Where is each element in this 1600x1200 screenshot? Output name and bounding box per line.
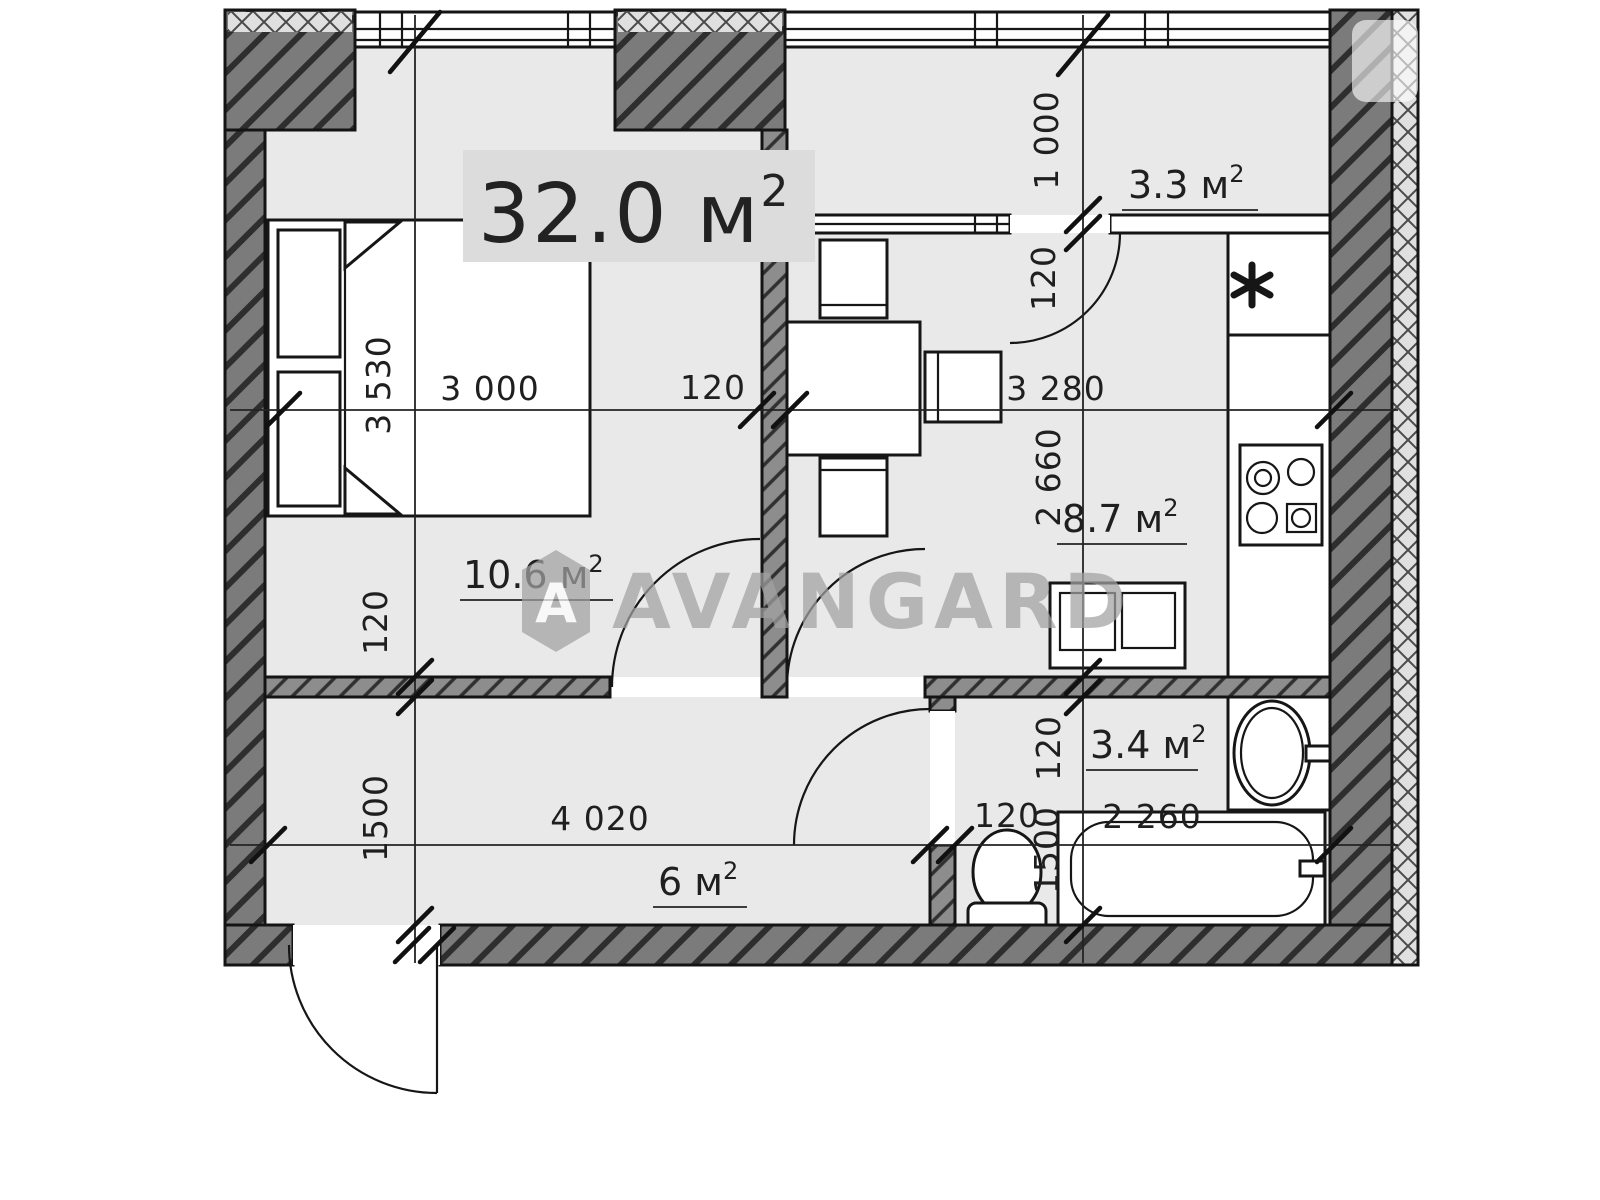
- wall-bedroom-hallway: [265, 677, 610, 697]
- kitchen-area-label: 8.7 м2: [1062, 494, 1178, 541]
- corner-overlay-icon[interactable]: [1352, 20, 1418, 102]
- wall-kitchen-bathroom: [925, 677, 1330, 697]
- cooktop: [1240, 445, 1322, 545]
- bedroom-window: [355, 12, 615, 47]
- dim-hall-width: 4 020: [550, 799, 649, 838]
- dim-loggia-partition: 120: [1024, 245, 1063, 311]
- chair: [820, 240, 887, 318]
- dining-table: [787, 322, 920, 455]
- right-wall-insulation: [1392, 10, 1418, 965]
- total-area-label: 32.0 м2: [478, 166, 791, 262]
- dim-kitchen-width: 3 280: [1006, 369, 1105, 408]
- bathroom-area-label: 3.4 м2: [1090, 720, 1206, 767]
- dim-bath-height: 1500: [1027, 806, 1066, 894]
- bedroom-door-threshold: [610, 677, 762, 697]
- top-left-insulation: [228, 12, 352, 32]
- watermark-brand: AVANGARD: [612, 557, 1133, 646]
- kitchen-door-threshold: [787, 677, 925, 697]
- loggia-window: [785, 12, 1330, 47]
- dim-loggia-depth: 1 000: [1027, 90, 1066, 189]
- entrance-door-arc: [289, 945, 437, 1093]
- tub-faucet: [1300, 861, 1324, 876]
- floor-plan-page: 3 000 120 3 280 4 020 120 2 260 3 530 12…: [0, 0, 1600, 1200]
- entrance-threshold: [293, 925, 440, 965]
- dim-bedroom-width: 3 000: [440, 369, 539, 408]
- pillow: [278, 372, 340, 506]
- pier-insulation: [618, 12, 782, 32]
- windows: [355, 12, 1330, 47]
- bed: [268, 220, 590, 516]
- basin-faucet: [1306, 746, 1330, 761]
- wall-hallway-bathroom-top: [930, 697, 955, 711]
- watermark-logo-letter: A: [535, 572, 577, 635]
- dim-wall-bedroom-kitchen: 120: [680, 368, 746, 407]
- loggia-area-label: 3.3 м2: [1128, 160, 1244, 207]
- dim-wall-bedroom-hall: 120: [356, 589, 395, 655]
- dim-bedroom-height: 3 530: [359, 335, 398, 434]
- chair: [925, 352, 1001, 422]
- bathroom-door-threshold: [930, 711, 955, 845]
- watermark: A AVANGARD: [522, 550, 1133, 652]
- dim-wall-kitchen-bath: 120: [1029, 715, 1068, 781]
- dim-hall-height: 1500: [356, 774, 395, 862]
- right-wall: [1330, 10, 1392, 965]
- dim-tub-width: 2 260: [1102, 797, 1201, 836]
- bottom-wall-main: [440, 925, 1392, 965]
- floor-plan-drawing: 3 000 120 3 280 4 020 120 2 260 3 530 12…: [0, 0, 1600, 1200]
- pillow: [278, 230, 340, 357]
- bottom-wall-left: [225, 925, 293, 965]
- left-wall: [225, 10, 265, 965]
